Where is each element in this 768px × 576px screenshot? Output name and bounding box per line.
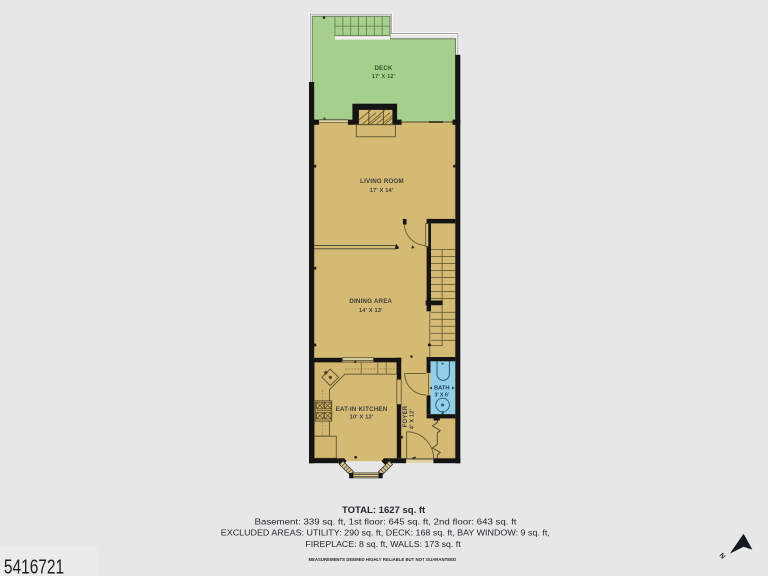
svg-text:10' X 12': 10' X 12' — [350, 415, 374, 421]
svg-text:Basement: 339 sq. ft, 1st floo: Basement: 339 sq. ft, 1st floor: 645 sq.… — [255, 516, 518, 526]
svg-text:DINING AREA: DINING AREA — [349, 298, 392, 305]
svg-text:EAT-IN KITCHEN: EAT-IN KITCHEN — [336, 406, 388, 413]
svg-text:FIREPLACE: 8 sq. ft, WALLS: 17: FIREPLACE: 8 sq. ft, WALLS: 173 sq. ft — [305, 539, 461, 549]
svg-text:3' X 6': 3' X 6' — [435, 393, 450, 399]
svg-text:4' X 12': 4' X 12' — [409, 408, 415, 429]
svg-text:BATH: BATH — [434, 386, 450, 392]
svg-text:14' X 13': 14' X 13' — [359, 308, 383, 314]
svg-text:LIVING ROOM: LIVING ROOM — [360, 178, 404, 185]
svg-text:MEASUREMENTS DEEMED HIGHLY REL: MEASUREMENTS DEEMED HIGHLY RELIABLE BUT … — [308, 557, 456, 563]
svg-text:5416721: 5416721 — [4, 556, 64, 576]
svg-text:17' X 14': 17' X 14' — [370, 188, 394, 194]
svg-text:17' X 12': 17' X 12' — [372, 74, 396, 80]
svg-text:EXCLUDED AREAS: UTILITY: 290 s: EXCLUDED AREAS: UTILITY: 290 sq. ft, DEC… — [221, 528, 550, 538]
svg-text:TOTAL: 1627 sq. ft: TOTAL: 1627 sq. ft — [342, 505, 425, 515]
svg-text:FOYER: FOYER — [403, 405, 409, 427]
svg-text:DECK: DECK — [374, 65, 392, 72]
